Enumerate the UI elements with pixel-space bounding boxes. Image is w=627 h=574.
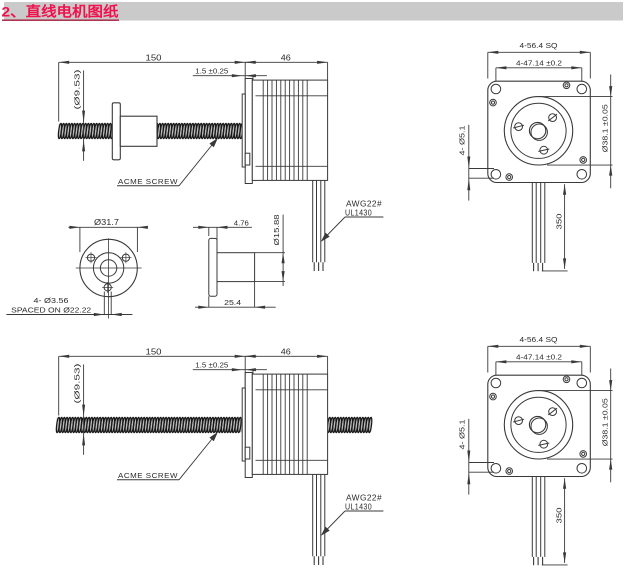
svg-text:4- Ø3.56: 4- Ø3.56 — [34, 296, 69, 305]
svg-text:Ø31.7: Ø31.7 — [94, 218, 119, 227]
svg-text:25.4: 25.4 — [224, 298, 241, 307]
svg-text:2、直线电机图纸: 2、直线电机图纸 — [2, 4, 119, 20]
svg-text:4.76: 4.76 — [234, 218, 249, 227]
svg-text:SPACED ON Ø22.22: SPACED ON Ø22.22 — [11, 305, 91, 314]
svg-text:Ø15.88: Ø15.88 — [272, 215, 281, 246]
